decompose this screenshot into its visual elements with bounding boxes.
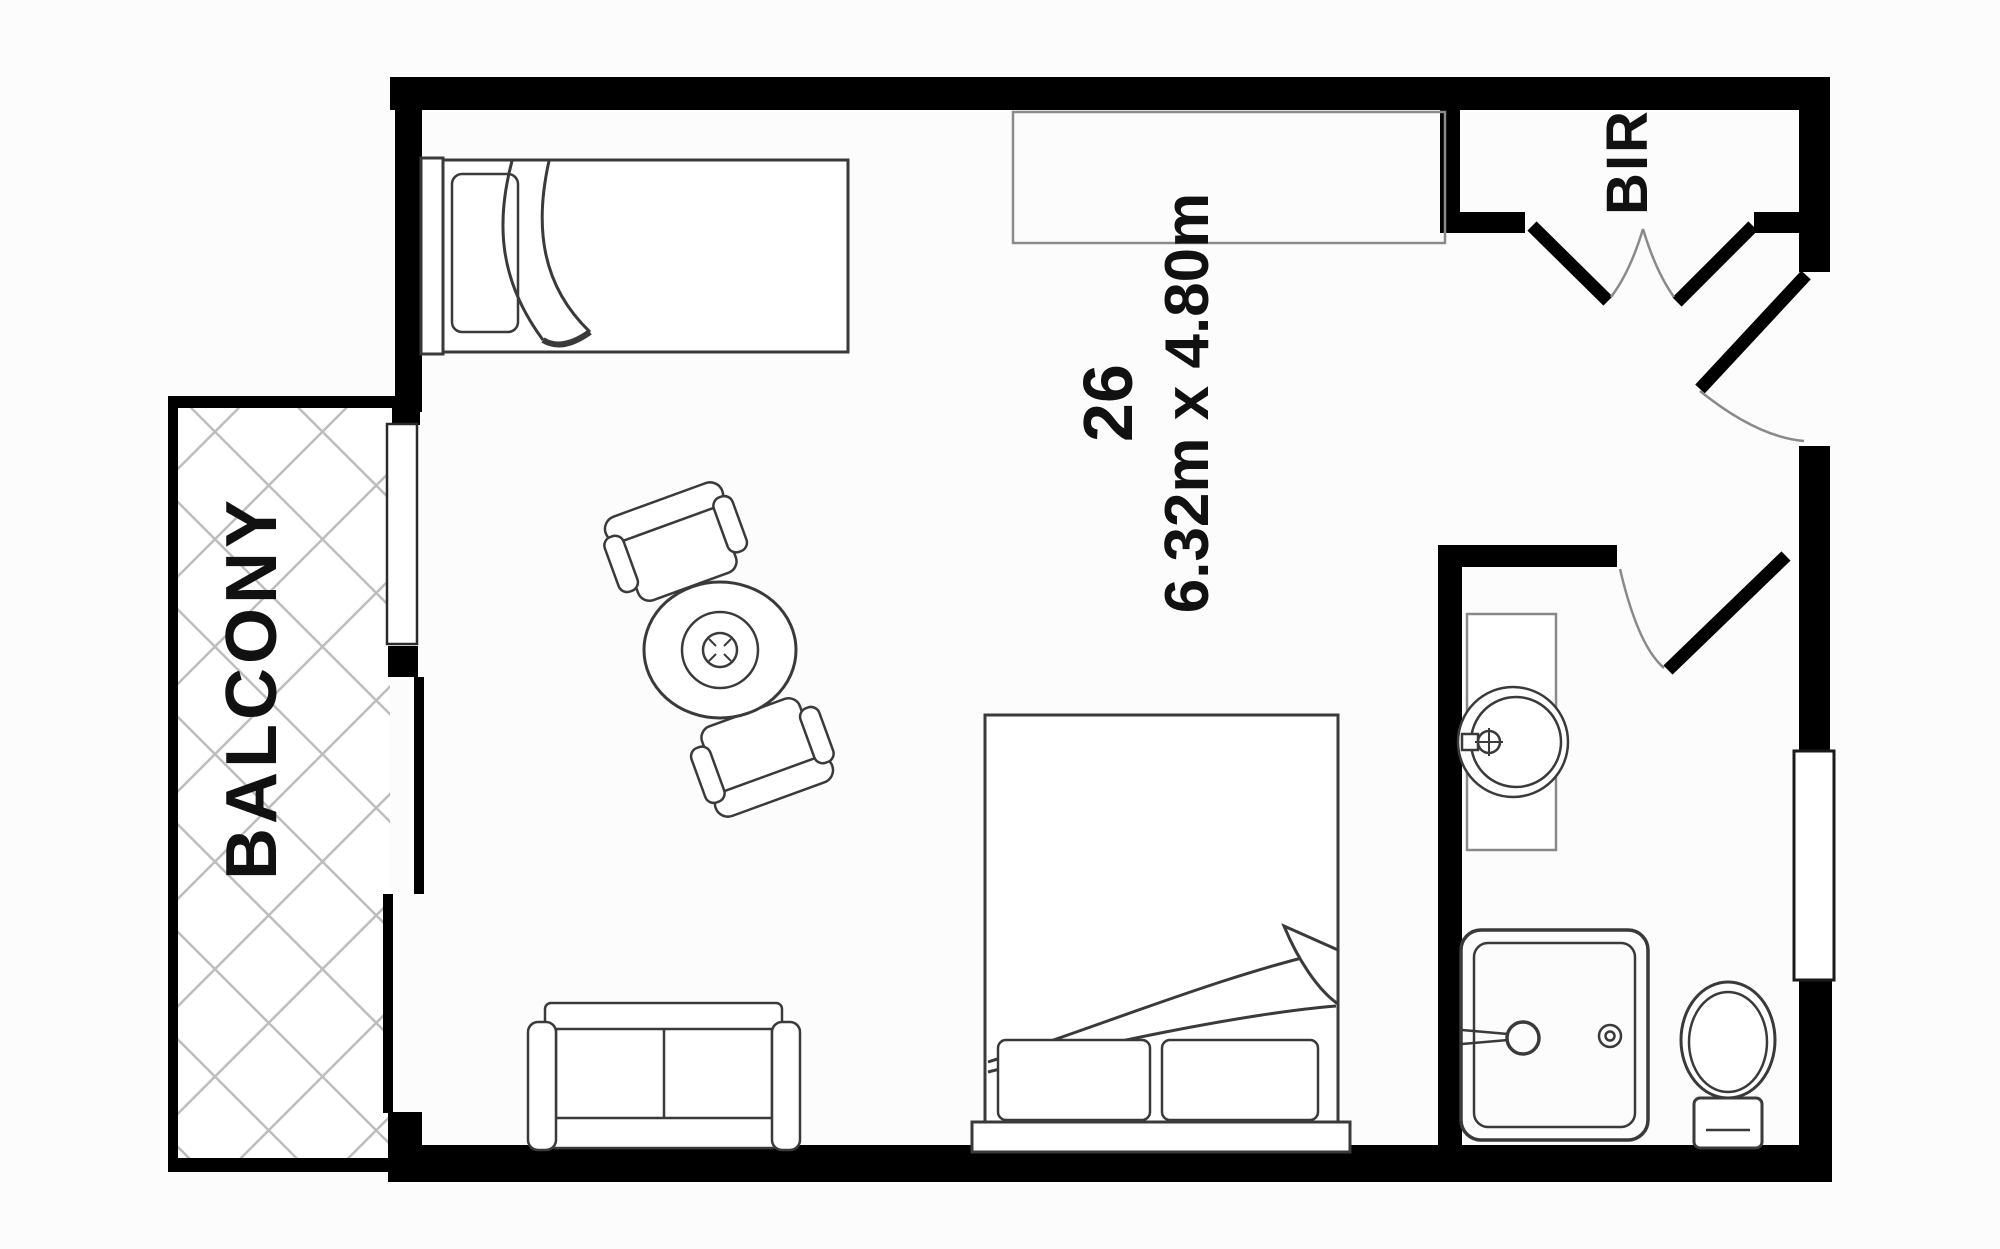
single-bed bbox=[421, 158, 848, 354]
single-bed-headboard bbox=[421, 158, 443, 354]
shower-drain-inner bbox=[1606, 1032, 1615, 1041]
balcony-label: BALCONY bbox=[216, 496, 288, 880]
bathroom-door bbox=[1620, 556, 1786, 670]
toilet-bowl bbox=[1681, 982, 1775, 1098]
bir-label: BIR bbox=[1599, 109, 1657, 215]
entry-door-leaf bbox=[1700, 275, 1806, 389]
wall-west-corner-block bbox=[388, 1112, 422, 1182]
double-bed-pillow-right bbox=[1162, 1040, 1318, 1120]
wall-west-glass-lower bbox=[383, 894, 393, 1113]
bir-wall-left bbox=[1440, 110, 1460, 233]
double-bed-pillow-left bbox=[998, 1040, 1150, 1120]
single-bed-pillow bbox=[452, 174, 518, 332]
shower-tray-inner bbox=[1474, 943, 1635, 1127]
bathroom-door-leaf bbox=[1668, 556, 1786, 670]
floor-plan: BALCONY BIR 26 6.32m x 4.80m bbox=[0, 0, 2000, 1249]
bathroom-wall-top bbox=[1462, 545, 1617, 567]
bir-door-leaf-left bbox=[1532, 226, 1608, 301]
balcony-wall-top bbox=[168, 396, 396, 408]
sofa-front-edge bbox=[548, 1118, 780, 1148]
east-window bbox=[1794, 751, 1834, 980]
unit-label: 26 6.32m x 4.80m bbox=[1073, 193, 1219, 614]
bir-jamb-right bbox=[1754, 212, 1799, 233]
wall-top bbox=[390, 77, 1830, 110]
shower-supply-pipes bbox=[1462, 1030, 1508, 1044]
shower-drain-outer bbox=[1599, 1025, 1621, 1047]
entry-door bbox=[1700, 275, 1806, 441]
dining-set bbox=[596, 477, 843, 823]
wall-west-glass-upper bbox=[414, 677, 424, 894]
wall-west-upper bbox=[395, 77, 422, 412]
round-table-top bbox=[644, 582, 796, 718]
sofa bbox=[528, 1003, 800, 1150]
balcony-wall-left bbox=[168, 396, 178, 1172]
sliding-door-jamb-bottom bbox=[388, 646, 418, 677]
bir-bifold-doors bbox=[1532, 226, 1753, 302]
bathroom bbox=[1458, 614, 1775, 1148]
shower-head bbox=[1507, 1022, 1539, 1054]
bir-door-arc-left bbox=[1611, 229, 1643, 297]
bathroom-door-swing-arc bbox=[1620, 569, 1664, 668]
balcony-sliding-door bbox=[387, 424, 417, 644]
double-bed-headboard bbox=[972, 1122, 1350, 1152]
unit-number: 26 bbox=[1073, 364, 1143, 442]
double-bed bbox=[972, 715, 1350, 1152]
entry-door-swing-arc bbox=[1700, 391, 1804, 441]
wall-east-top-corner bbox=[1799, 77, 1830, 272]
sofa-backrest bbox=[545, 1003, 782, 1029]
sliding-door-jamb-top bbox=[392, 407, 420, 425]
sofa-armrest-right bbox=[772, 1022, 800, 1150]
bir-door-leaf-right bbox=[1677, 226, 1753, 302]
balcony-wall-bottom bbox=[168, 1158, 392, 1172]
sofa-armrest-left bbox=[528, 1022, 556, 1150]
toilet-cistern bbox=[1694, 1098, 1762, 1148]
bir-door-arc-right bbox=[1643, 229, 1674, 297]
room-dimensions: 6.32m x 4.80m bbox=[1157, 193, 1219, 614]
floor-plan-drawing bbox=[0, 0, 2000, 1249]
bir-jamb-left bbox=[1460, 212, 1525, 233]
wall-east-mid bbox=[1799, 446, 1830, 751]
bathroom-wall-left bbox=[1438, 545, 1462, 1182]
